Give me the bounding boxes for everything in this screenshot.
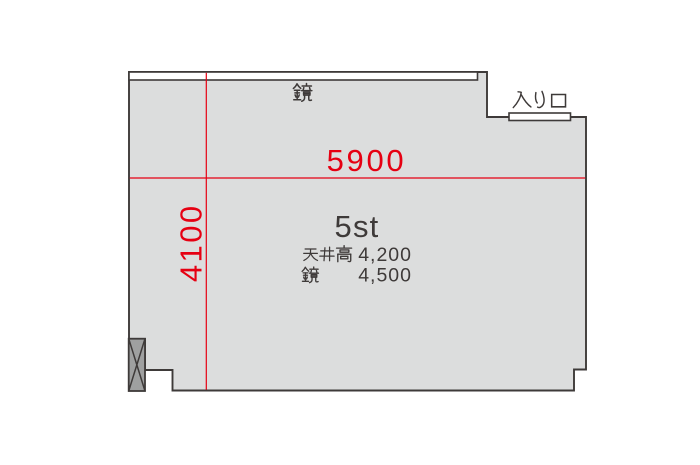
svg-text:5900: 5900 xyxy=(327,143,407,178)
svg-text:4,500: 4,500 xyxy=(358,264,412,286)
svg-text:4,200: 4,200 xyxy=(358,244,412,266)
svg-text:5st: 5st xyxy=(335,209,380,244)
svg-text:4100: 4100 xyxy=(174,204,209,283)
